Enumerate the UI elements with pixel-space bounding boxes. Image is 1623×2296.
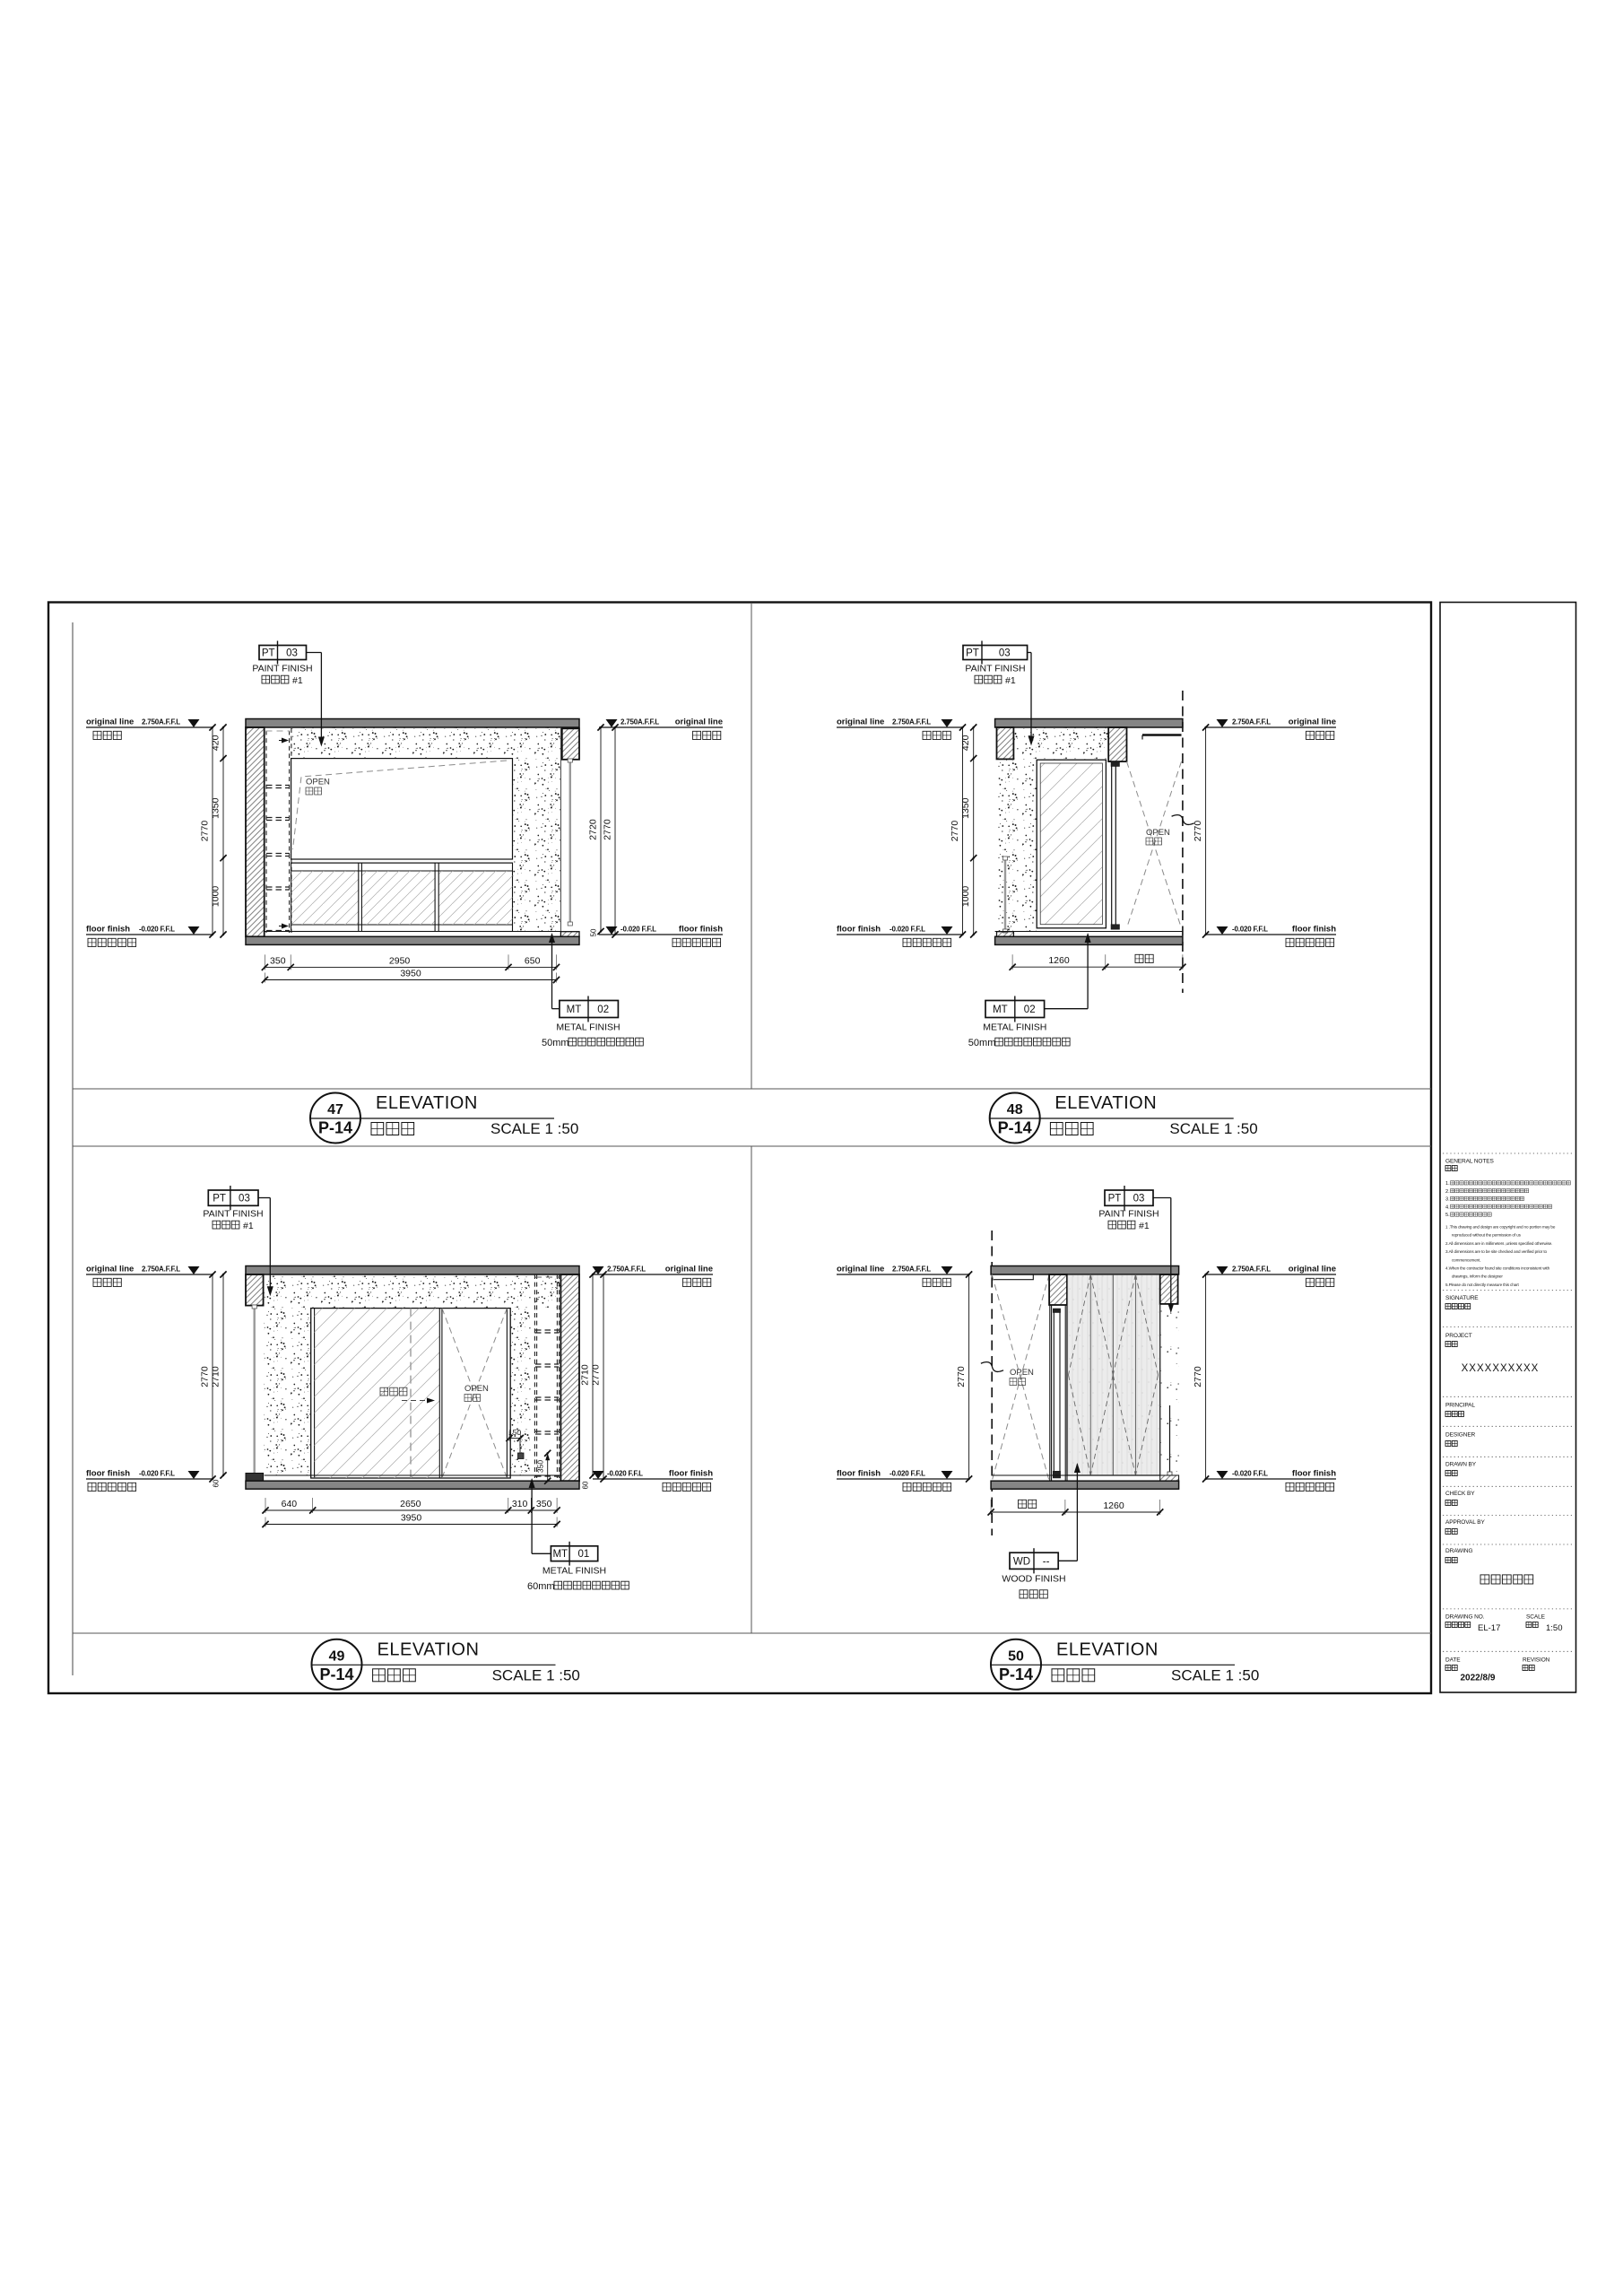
svg-text:ELEVATION: ELEVATION — [378, 1639, 480, 1659]
svg-text:METAL FINISH: METAL FINISH — [542, 1566, 606, 1577]
svg-text:GENERAL NOTES: GENERAL NOTES — [1445, 1159, 1494, 1165]
svg-text:420: 420 — [960, 735, 971, 751]
svg-text:2022/8/9: 2022/8/9 — [1461, 1674, 1496, 1683]
svg-text:350: 350 — [270, 955, 286, 966]
svg-text:2710: 2710 — [580, 1364, 591, 1386]
svg-text:PT: PT — [262, 648, 275, 659]
svg-text:2710: 2710 — [211, 1366, 221, 1387]
svg-text:2770: 2770 — [956, 1366, 967, 1387]
svg-text:5.: 5. — [1445, 1213, 1450, 1218]
svg-text:METAL FINISH: METAL FINISH — [556, 1022, 620, 1033]
svg-text:floor finish: floor finish — [837, 925, 881, 935]
svg-text:47: 47 — [327, 1102, 343, 1118]
svg-text:P-14: P-14 — [318, 1119, 352, 1137]
svg-text:OPEN: OPEN — [306, 778, 330, 787]
svg-text:2770: 2770 — [591, 1364, 602, 1386]
svg-text:1000: 1000 — [960, 886, 971, 908]
svg-text:original line: original line — [1289, 1265, 1336, 1274]
svg-text:PT: PT — [213, 1194, 226, 1205]
svg-text:original line: original line — [86, 717, 134, 727]
svg-text:1260: 1260 — [1048, 955, 1070, 966]
svg-text:03: 03 — [239, 1194, 250, 1205]
svg-text:-0.020 F.F.L: -0.020 F.F.L — [139, 926, 175, 934]
svg-text:640: 640 — [282, 1499, 298, 1509]
svg-text:P-14: P-14 — [998, 1119, 1032, 1137]
svg-text:2.750A.F.F.L: 2.750A.F.F.L — [1232, 1265, 1271, 1274]
svg-text:1350: 1350 — [211, 797, 221, 819]
svg-text:2770: 2770 — [950, 821, 960, 842]
svg-text:03: 03 — [1133, 1194, 1145, 1205]
svg-text:floor finish: floor finish — [1292, 1469, 1336, 1479]
svg-text:ELEVATION: ELEVATION — [1056, 1639, 1159, 1659]
svg-text:150: 150 — [508, 1428, 521, 1437]
svg-text:2650: 2650 — [400, 1499, 421, 1509]
svg-text:SCALE 1 :50: SCALE 1 :50 — [492, 1666, 580, 1683]
svg-text:APPROVAL BY: APPROVAL BY — [1445, 1519, 1485, 1526]
svg-text:2770: 2770 — [1193, 821, 1203, 842]
svg-text:PT: PT — [966, 648, 979, 659]
svg-text:floor finish: floor finish — [679, 925, 723, 935]
svg-text:original line: original line — [1289, 717, 1336, 727]
svg-text:METAL FINISH: METAL FINISH — [983, 1022, 1046, 1033]
svg-text:MT: MT — [993, 1004, 1008, 1015]
svg-text:MT: MT — [552, 1549, 568, 1560]
svg-text:2.750A.F.F.L: 2.750A.F.F.L — [892, 1265, 931, 1274]
svg-text:#1: #1 — [1005, 675, 1016, 686]
svg-text:EL-17: EL-17 — [1478, 1623, 1500, 1633]
svg-text:2.750A.F.F.L: 2.750A.F.F.L — [142, 1265, 180, 1274]
svg-text:PAINT FINISH: PAINT FINISH — [203, 1209, 263, 1220]
svg-text:-0.020 F.F.L: -0.020 F.F.L — [890, 1470, 925, 1478]
svg-text:WD: WD — [1013, 1556, 1030, 1567]
svg-text:50: 50 — [1008, 1648, 1024, 1664]
svg-text:60: 60 — [213, 1479, 221, 1487]
svg-text:420: 420 — [211, 735, 221, 751]
svg-text:-0.020 F.F.L: -0.020 F.F.L — [890, 926, 925, 934]
svg-text:#1: #1 — [1139, 1221, 1150, 1231]
svg-text:floor finish: floor finish — [837, 1469, 881, 1479]
svg-text:2720: 2720 — [588, 819, 599, 840]
svg-text:350: 350 — [536, 1460, 545, 1473]
svg-text:original line: original line — [675, 717, 723, 727]
svg-text:PAINT FINISH: PAINT FINISH — [1098, 1209, 1159, 1220]
svg-text:2770: 2770 — [200, 821, 211, 842]
svg-text:floor finish: floor finish — [86, 1469, 130, 1479]
svg-text:ELEVATION: ELEVATION — [376, 1093, 478, 1113]
svg-text:60: 60 — [582, 1481, 590, 1489]
svg-text:floor finish: floor finish — [86, 925, 130, 935]
svg-text:3950: 3950 — [401, 1513, 422, 1524]
svg-text:OPEN: OPEN — [464, 1384, 489, 1394]
svg-text:-0.020 F.F.L: -0.020 F.F.L — [139, 1470, 175, 1478]
svg-text:XXXXXXXXXX: XXXXXXXXXX — [1462, 1363, 1540, 1374]
svg-text:02: 02 — [1024, 1004, 1036, 1015]
svg-text:1350: 1350 — [960, 797, 971, 819]
svg-text:OPEN: OPEN — [1146, 828, 1170, 838]
svg-text:REVISION: REVISION — [1523, 1657, 1550, 1664]
svg-text:#1: #1 — [292, 675, 303, 686]
svg-text:-0.020 F.F.L: -0.020 F.F.L — [1232, 926, 1268, 934]
svg-text:1.: 1. — [1445, 1181, 1450, 1187]
svg-text:commencement.: commencement. — [1452, 1257, 1480, 1262]
svg-text:floor finish: floor finish — [669, 1469, 713, 1479]
svg-text:SCALE 1 :50: SCALE 1 :50 — [1171, 1666, 1259, 1683]
svg-text:350: 350 — [536, 1499, 552, 1509]
svg-text:-0.020 F.F.L: -0.020 F.F.L — [621, 926, 656, 934]
svg-text:PAINT FINISH: PAINT FINISH — [965, 664, 1025, 674]
svg-text:drawings, inform the designer: drawings, inform the designer — [1452, 1274, 1503, 1279]
svg-text:SCALE 1 :50: SCALE 1 :50 — [490, 1120, 578, 1137]
svg-text:reproduced without the permiss: reproduced without the permission of us — [1452, 1233, 1522, 1238]
svg-text:2950: 2950 — [389, 955, 411, 966]
svg-text:2.750A.F.F.L: 2.750A.F.F.L — [607, 1265, 646, 1274]
svg-text:2.750A.F.F.L: 2.750A.F.F.L — [1232, 718, 1271, 726]
svg-text:650: 650 — [525, 955, 541, 966]
svg-text:2.: 2. — [1445, 1189, 1450, 1195]
svg-text:-0.020 F.F.L: -0.020 F.F.L — [1232, 1470, 1268, 1478]
svg-text:4.: 4. — [1445, 1205, 1450, 1210]
svg-text:2770: 2770 — [603, 819, 613, 840]
svg-text:-0.020 F.F.L: -0.020 F.F.L — [607, 1470, 643, 1478]
svg-text:2770: 2770 — [1193, 1366, 1203, 1387]
svg-text:2.750A.F.F.L: 2.750A.F.F.L — [621, 718, 659, 726]
svg-text:2.750A.F.F.L: 2.750A.F.F.L — [892, 718, 931, 726]
svg-text:#1: #1 — [243, 1221, 254, 1231]
svg-text:ELEVATION: ELEVATION — [1055, 1093, 1157, 1113]
svg-text:1000: 1000 — [211, 886, 221, 908]
svg-text:PROJECT: PROJECT — [1445, 1333, 1472, 1339]
svg-text:original line: original line — [86, 1265, 134, 1274]
svg-text:floor finish: floor finish — [1292, 925, 1336, 935]
svg-text:3950: 3950 — [400, 969, 421, 979]
svg-text:PT: PT — [1108, 1194, 1122, 1205]
svg-text:2.750A.F.F.L: 2.750A.F.F.L — [142, 718, 180, 726]
svg-text:50: 50 — [590, 928, 598, 936]
svg-text:03: 03 — [999, 648, 1011, 659]
svg-text:01: 01 — [578, 1549, 590, 1560]
svg-text:49: 49 — [329, 1648, 345, 1664]
svg-text:3.All dimensions are to be sit: 3.All dimensions are to be site checked … — [1445, 1249, 1548, 1254]
svg-text:MT: MT — [567, 1004, 582, 1015]
svg-text:SIGNATURE: SIGNATURE — [1445, 1295, 1479, 1301]
svg-text:original line: original line — [837, 1265, 884, 1274]
svg-text:P-14: P-14 — [999, 1665, 1033, 1683]
svg-text:50mm: 50mm — [542, 1038, 569, 1048]
svg-text:4.When the contractor found si: 4.When the contractor found site conditi… — [1445, 1266, 1550, 1271]
svg-text:DRAWING NO.: DRAWING NO. — [1445, 1614, 1485, 1621]
svg-text:1260: 1260 — [1103, 1500, 1124, 1511]
svg-text:DRAWN BY: DRAWN BY — [1445, 1462, 1477, 1468]
svg-text:original line: original line — [837, 717, 884, 727]
svg-text:OPEN: OPEN — [1010, 1368, 1034, 1378]
svg-text:1:50: 1:50 — [1546, 1623, 1563, 1633]
svg-text:PAINT FINISH: PAINT FINISH — [252, 664, 312, 674]
svg-text:03: 03 — [286, 648, 298, 659]
svg-text:--: -- — [1043, 1556, 1050, 1567]
svg-text:48: 48 — [1007, 1102, 1023, 1118]
svg-text:WOOD FINISH: WOOD FINISH — [1002, 1574, 1065, 1585]
svg-text:PRINCIPAL: PRINCIPAL — [1445, 1403, 1475, 1409]
svg-text:SCALE 1 :50: SCALE 1 :50 — [1169, 1120, 1257, 1137]
svg-text:1 .This drawing and design are: 1 .This drawing and design are copyright… — [1445, 1225, 1556, 1230]
svg-text:3.: 3. — [1445, 1197, 1450, 1203]
svg-text:SCALE: SCALE — [1526, 1614, 1546, 1621]
svg-text:5.Please do not directly measu: 5.Please do not directly measure this ch… — [1445, 1283, 1519, 1287]
svg-text:310: 310 — [512, 1499, 528, 1509]
svg-text:02: 02 — [597, 1004, 609, 1015]
svg-text:original line: original line — [665, 1265, 713, 1274]
svg-text:CHECK BY: CHECK BY — [1445, 1491, 1475, 1497]
svg-text:2.All dimensions are in millim: 2.All dimensions are in millimeters ,unl… — [1445, 1241, 1552, 1246]
svg-text:DATE: DATE — [1445, 1657, 1461, 1664]
svg-text:2770: 2770 — [200, 1366, 211, 1387]
svg-text:P-14: P-14 — [319, 1665, 353, 1683]
svg-text:60mm: 60mm — [527, 1581, 555, 1592]
svg-text:DRAWING: DRAWING — [1445, 1548, 1473, 1554]
svg-text:DESIGNER: DESIGNER — [1445, 1432, 1476, 1439]
svg-text:50mm: 50mm — [968, 1038, 996, 1048]
